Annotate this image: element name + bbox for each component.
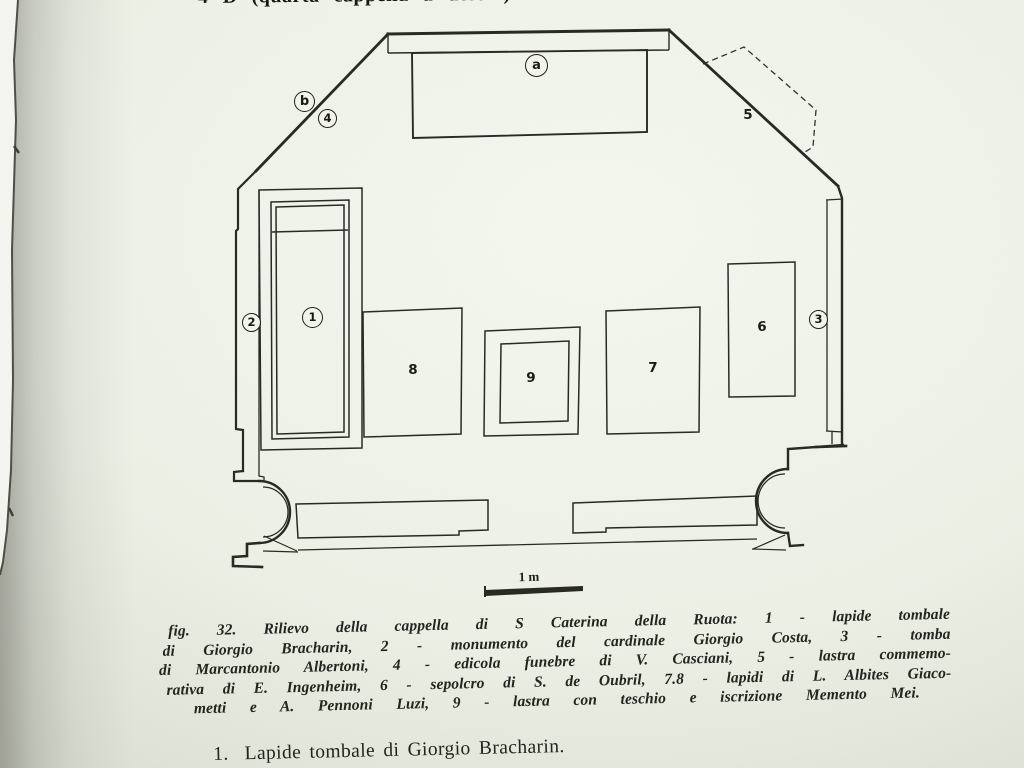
altar-recess bbox=[388, 30, 669, 138]
scanned-book-page: { "page": { "header_cropped_line": "4 D … bbox=[0, 0, 1024, 768]
entrance-step-right bbox=[573, 496, 757, 533]
marker-4-edicola: 4 bbox=[318, 109, 337, 128]
scale-bar-label: 1 m bbox=[506, 569, 552, 586]
marker-1-lapide: 1 bbox=[302, 307, 323, 328]
marker-a-altar: a bbox=[525, 54, 548, 77]
marker-9-lastra: 9 bbox=[524, 372, 538, 386]
marker-8-lapide: 8 bbox=[406, 364, 420, 378]
marker-b-wall: b bbox=[294, 91, 315, 112]
marker-2-monumento: 2 bbox=[242, 313, 261, 332]
entrance-step-left bbox=[296, 500, 488, 538]
marker-7-lapide: 7 bbox=[646, 362, 660, 376]
list-item-number: 1. bbox=[213, 744, 229, 765]
scale-bar bbox=[485, 586, 583, 597]
marker-3-tomba: 3 bbox=[809, 310, 828, 329]
caption-fig-label: fig. 32. bbox=[168, 621, 237, 639]
dashed-slab-5-outline bbox=[703, 47, 816, 152]
monument-1-divider bbox=[272, 230, 348, 232]
marker-5-lastra: 5 bbox=[741, 109, 755, 123]
marker-6-sepolcro: 6 bbox=[755, 321, 769, 335]
figure-caption: fig. 32. Rilievo della cappella di S Cat… bbox=[158, 605, 952, 720]
monuments bbox=[259, 188, 795, 538]
